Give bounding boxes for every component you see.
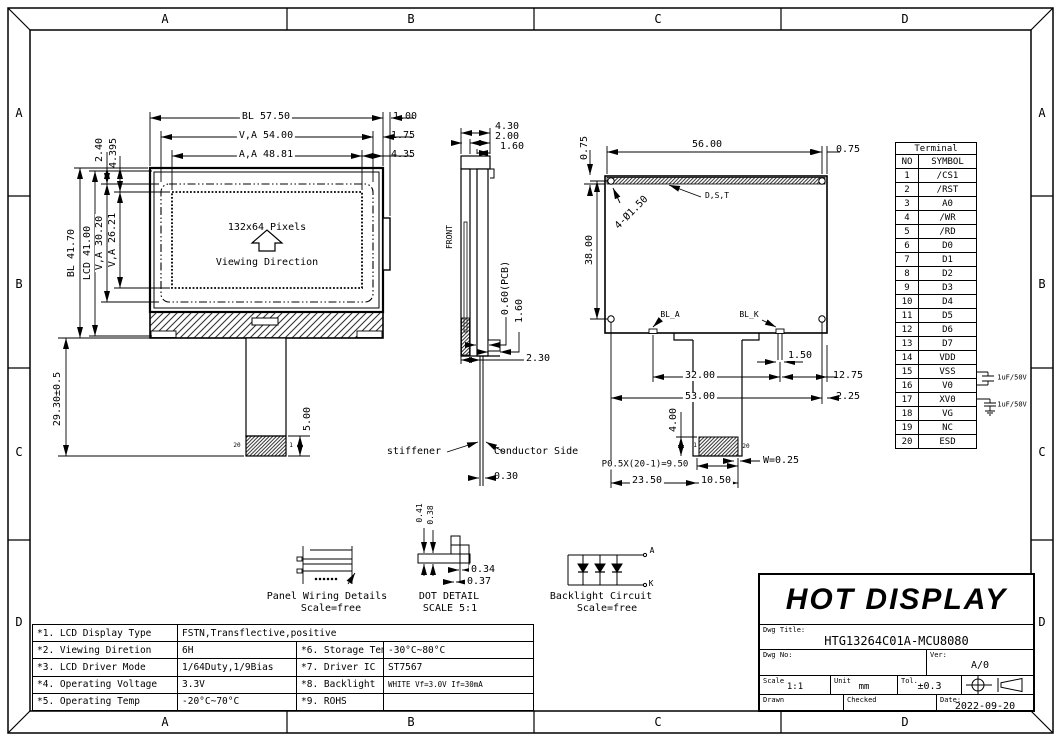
drawn-label: Drawn: [763, 696, 784, 704]
anode-label: A: [650, 547, 655, 555]
cap-value-top: 1uF/50V: [997, 375, 1027, 382]
dwg-title-label: Dwg Title:: [763, 626, 805, 634]
dim-bl-height: BL 41.70: [67, 227, 77, 279]
dim-2-40: 2.40: [95, 138, 105, 162]
table-row: 19NC: [896, 421, 977, 435]
viewing-direction-label: Viewing Direction: [216, 258, 318, 268]
unit-value: mm: [831, 682, 897, 692]
zone-left-b: B: [15, 277, 22, 291]
dim-12-75: 12.75: [833, 371, 863, 381]
dim-1-50: 1.50: [786, 351, 814, 361]
dim-1-75: 1.75: [391, 131, 415, 141]
bl-cathode-label: BL_K: [739, 311, 758, 319]
dim-23-50: 23.50: [630, 476, 664, 486]
table-row: 11D5: [896, 309, 977, 323]
table-row: 3A0: [896, 197, 977, 211]
dim-1-60-top: 1.60: [500, 142, 524, 152]
bl-anode-label: BL_A: [660, 311, 679, 319]
dim-va-width: V,A 54.00: [237, 131, 295, 141]
pixels-label: 132x64 Pixels: [228, 223, 306, 233]
zone-left-a: A: [15, 106, 22, 120]
terminal-table-title: Terminal: [896, 143, 977, 155]
dim-1-00: 1.00: [393, 112, 417, 122]
table-row: 18VG: [896, 407, 977, 421]
back-pin-20: 20: [742, 444, 749, 450]
ver-label: Ver:: [930, 651, 947, 659]
dim-10-50: 10.50: [699, 476, 733, 486]
spec-table: *1. LCD Display TypeFSTN,Transflective,p…: [32, 624, 534, 711]
dim-2-30: 2.30: [524, 354, 552, 364]
dwg-title-value: HTG13264C01A-MCU8080: [760, 634, 1033, 648]
table-row: 2/RST: [896, 183, 977, 197]
dim-38: 38.00: [585, 233, 595, 267]
table-row: 7D1: [896, 253, 977, 267]
zone-bottom-c: C: [654, 715, 661, 729]
dim-56: 56.00: [690, 140, 724, 150]
dim-pcb-thickness: 0.60(PCB): [501, 259, 511, 317]
date-value: 2022-09-20: [937, 701, 1033, 712]
zone-bottom-b: B: [407, 715, 414, 729]
zone-top-a: A: [161, 12, 168, 26]
zone-right-c: C: [1038, 445, 1045, 459]
zone-left-d: D: [15, 615, 22, 629]
dot-detail-scale: SCALE 5:1: [423, 604, 477, 614]
projection-symbol-icon: [962, 676, 1032, 694]
dim-53: 53.00: [683, 392, 717, 402]
table-row: *3. LCD Driver Mode1/64Duty,1/9Bias*7. D…: [33, 659, 534, 676]
dwg-no-label: Dwg No:: [763, 651, 793, 659]
checked-label: Checked: [847, 696, 877, 704]
dim-4-395: 4.395: [109, 138, 119, 168]
backlight-circuit-title: Backlight Circuit: [550, 592, 652, 602]
table-row: *1. LCD Display TypeFSTN,Transflective,p…: [33, 625, 534, 642]
zone-bottom-a: A: [161, 715, 168, 729]
zone-right-d: D: [1038, 615, 1045, 629]
dim-stiffener-5: 5.00: [303, 407, 313, 431]
front-pin-20: 20: [233, 443, 240, 449]
dim-lcd-height: LCD 41.00: [83, 224, 93, 282]
dim-32: 32.00: [683, 371, 717, 381]
panel-wiring-scale: Scale=free: [301, 604, 361, 614]
zone-bottom-d: D: [901, 715, 908, 729]
table-row: 13D7: [896, 337, 977, 351]
table-row: 20ESD: [896, 435, 977, 449]
conductor-side-label: Conductor Side: [494, 447, 578, 457]
cathode-label: K: [649, 580, 654, 588]
dim-bl-width: BL 57.50: [240, 112, 292, 122]
zone-left-c: C: [15, 445, 22, 459]
dim-aa-width: A,A 48.81: [237, 150, 295, 160]
dot-dim-0-38: 0.38: [427, 505, 435, 524]
table-row: *2. Viewing Diretion6H*6. Storage Temp-3…: [33, 642, 534, 659]
terminal-header-no: NO: [896, 155, 919, 169]
table-row: 6D0: [896, 239, 977, 253]
dim-4-35: 4.35: [391, 150, 415, 160]
dim-0-30: 0.30: [494, 472, 518, 482]
table-row: 14VDD: [896, 351, 977, 365]
back-pin-1: 1: [693, 443, 697, 449]
table-row: 17XV0: [896, 393, 977, 407]
dot-dim-0-41: 0.41: [416, 503, 424, 522]
zone-top-d: D: [901, 12, 908, 26]
backlight-circuit-scale: Scale=free: [577, 604, 637, 614]
table-row: 4/WR: [896, 211, 977, 225]
dot-dim-0-34: 0.34: [469, 565, 497, 575]
zone-right-b: B: [1038, 277, 1045, 291]
dim-tail-length: 29.30±0.5: [53, 370, 63, 428]
ver-value: A/0: [927, 660, 1033, 671]
zone-top-c: C: [654, 12, 661, 26]
table-row: *4. Operating Voltage3.3V*8. BacklightWH…: [33, 676, 534, 693]
dim-0-75-left: 0.75: [580, 136, 590, 160]
front-side-label: FRONT: [446, 225, 454, 249]
dim-pin-width: W=0.25: [761, 456, 801, 466]
panel-wiring-title: Panel Wiring Details: [267, 592, 387, 602]
dim-aa-height: V,A 26.21: [108, 211, 118, 269]
table-row: 15VSS: [896, 365, 977, 379]
tol-value: ±0.3: [898, 681, 961, 692]
table-row: *5. Operating Temp-20°C~70°C*9. ROHS: [33, 693, 534, 710]
title-block: HOT DISPLAY Dwg Title: HTG13264C01A-MCU8…: [758, 573, 1035, 712]
dst-label: D,S,T: [705, 192, 729, 200]
front-pin-1: 1: [289, 443, 293, 449]
table-row: 1/CS1: [896, 169, 977, 183]
stiffener-label: stiffener: [387, 447, 441, 457]
drawing-sheet: A B C D A B C D A B C D A B C D BL 57.50…: [0, 0, 1061, 741]
dim-va-height: V,A 30.20: [95, 214, 105, 272]
table-row: 8D2: [896, 267, 977, 281]
table-row: 10D4: [896, 295, 977, 309]
table-row: 5/RD: [896, 225, 977, 239]
terminal-header-symbol: SYMBOL: [919, 155, 977, 169]
table-row: 12D6: [896, 323, 977, 337]
dim-pin-pitch: P0.5X(20-1)=9.50: [600, 461, 691, 470]
dot-dim-0-37: 0.37: [465, 577, 493, 587]
dim-0-75-right: 0.75: [836, 145, 860, 155]
dim-2-25: 2.25: [836, 392, 860, 402]
table-row: 9D3: [896, 281, 977, 295]
cap-value-bottom: 1uF/50V: [997, 402, 1027, 409]
zone-top-b: B: [407, 12, 414, 26]
dot-detail-title: DOT DETAIL: [419, 592, 479, 602]
zone-right-a: A: [1038, 106, 1045, 120]
company-name: HOT DISPLAY: [760, 575, 1033, 624]
table-row: 16V0: [896, 379, 977, 393]
terminal-table: Terminal NOSYMBOL 1/CS1 2/RST 3A0 4/WR 5…: [895, 142, 977, 449]
scale-value: 1:1: [760, 682, 830, 692]
dim-1-60-bottom: 1.60: [515, 297, 525, 325]
dim-4-00: 4.00: [669, 408, 679, 432]
